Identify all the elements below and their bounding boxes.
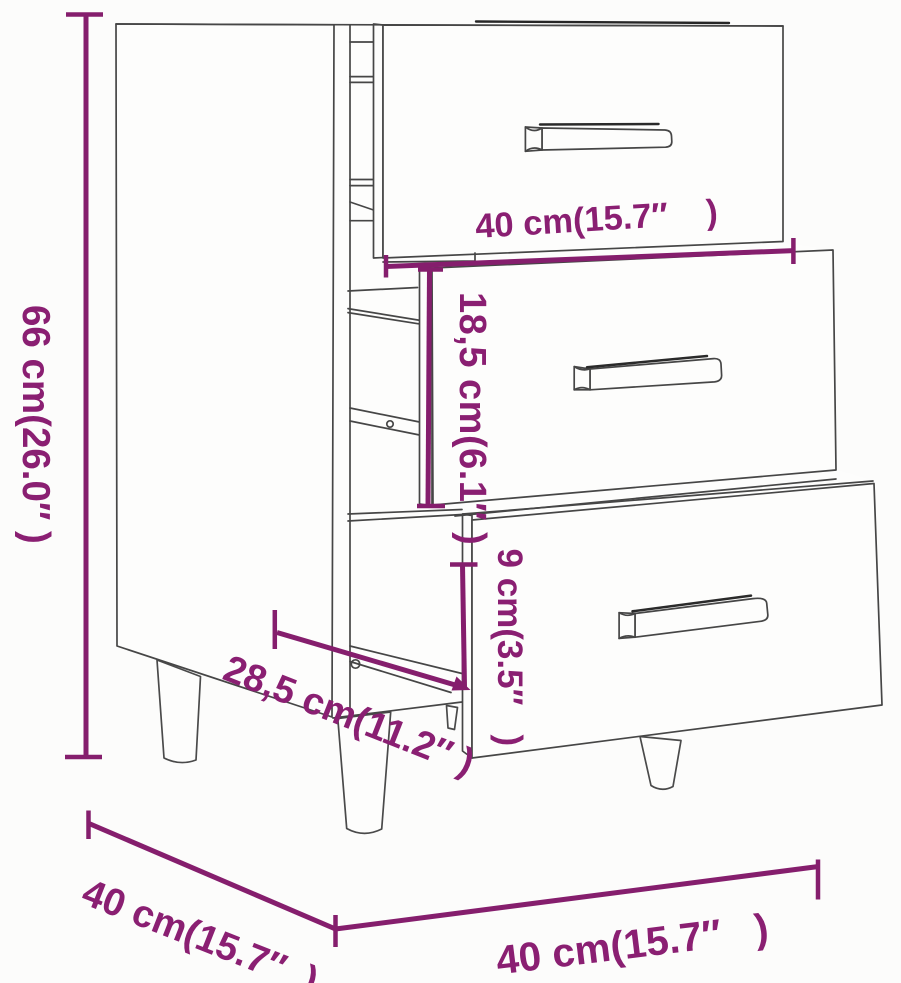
svg-text:40 cm(15.7″ ): 40 cm(15.7″ )	[76, 871, 324, 983]
svg-text:18,5 cm(6.1″ ): 18,5 cm(6.1″ )	[451, 292, 493, 545]
svg-text:40 cm(15.7″ ): 40 cm(15.7″ )	[493, 904, 770, 983]
svg-text:66 cm(26.0″ ): 66 cm(26.0″ )	[14, 305, 57, 544]
svg-text:9 cm(3.5″ ): 9 cm(3.5″ )	[490, 549, 529, 747]
